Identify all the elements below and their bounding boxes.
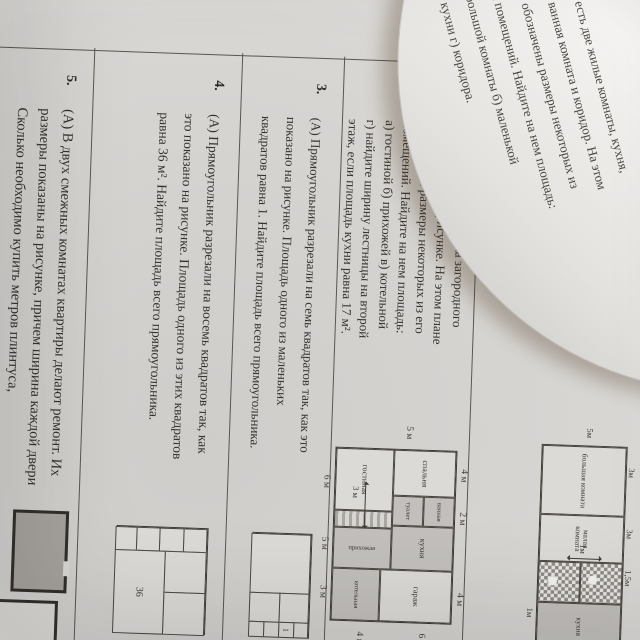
problem-3-number: 3. bbox=[312, 84, 328, 95]
dim-label: 5 м bbox=[404, 426, 414, 439]
small-square bbox=[293, 622, 309, 639]
room-garazh: гараж bbox=[379, 570, 453, 624]
room-prihozhaya: прихожая bbox=[332, 527, 391, 570]
room-vannaya: ванная bbox=[423, 497, 455, 527]
room-kuhnya: кухня bbox=[390, 525, 454, 572]
problem-1-floorplan: 3м 3м 1,5м 5м большая комната малая комн… bbox=[535, 444, 628, 640]
medium-square bbox=[163, 551, 206, 594]
problem-4-text: (А) Прямоугольник разрезали на восемь кв… bbox=[136, 112, 227, 569]
room-hatched-b bbox=[537, 561, 580, 603]
dim-label: 1,5м bbox=[623, 570, 634, 586]
door-mark bbox=[588, 575, 597, 584]
dim-label: 6 м bbox=[321, 475, 331, 488]
room-tualet: туалет bbox=[392, 496, 424, 526]
problem-4-squares-figure: 36 bbox=[113, 525, 209, 635]
dim-label: 5 м bbox=[319, 537, 329, 550]
small-square bbox=[183, 528, 208, 553]
problem-5-rooms-figure bbox=[0, 508, 73, 640]
room-hatched-a bbox=[579, 563, 622, 605]
room-kotelnaya: котельная bbox=[331, 568, 381, 621]
problem-3-squares-figure: 1 bbox=[249, 532, 313, 639]
room-bolshaya-komnata: большая комната bbox=[540, 445, 626, 517]
problem-4-number: 4. bbox=[210, 80, 226, 91]
dim-label: 4 м bbox=[458, 469, 468, 482]
small-square-labeled: 1 bbox=[278, 622, 295, 639]
dim-label: 3 м bbox=[317, 585, 327, 598]
dim-label: 3 м bbox=[351, 486, 361, 498]
problem-2-floorplan: 4 м 2 м 4 м 5 м 6 м 4 м 6 м 5 м 3 м спал… bbox=[330, 447, 458, 625]
medium-square bbox=[248, 592, 280, 623]
room-second bbox=[0, 599, 58, 640]
medium-square bbox=[162, 592, 205, 636]
medium-square bbox=[278, 593, 309, 624]
small-square bbox=[263, 621, 280, 638]
dim-label: 4 м bbox=[353, 631, 363, 640]
dim-label: 3м bbox=[627, 468, 637, 478]
dim-label: 3м bbox=[625, 529, 635, 539]
small-square bbox=[115, 526, 138, 551]
dim-label: 4 м bbox=[454, 593, 464, 606]
problem-5-number: 5. bbox=[62, 75, 78, 86]
dim-label: 1м bbox=[525, 608, 535, 618]
dim-label: 1м bbox=[578, 544, 588, 554]
small-square bbox=[248, 621, 265, 638]
big-square-labeled: 36 bbox=[112, 549, 166, 635]
door-mark bbox=[548, 576, 557, 585]
door-gap bbox=[63, 561, 70, 576]
room-spalnya: спальня bbox=[393, 450, 457, 499]
dim-label: 2 м bbox=[457, 512, 467, 525]
photo-of-worksheet: 3м 3м 1,5м 5м большая комната малая комн… bbox=[0, 0, 640, 640]
dim-label: 5м bbox=[585, 428, 595, 438]
small-square bbox=[159, 528, 185, 553]
room-shaded bbox=[10, 509, 69, 593]
small-square bbox=[136, 527, 161, 552]
big-square bbox=[249, 533, 311, 595]
room-kuhnya: кухня bbox=[536, 602, 622, 640]
room-label: прихожая bbox=[348, 544, 375, 553]
dim-label: 6 м bbox=[416, 633, 426, 640]
room-malaya-komnata: малая комната bbox=[539, 514, 625, 564]
problem-3-text: (А) Прямоугольник разрезали на семь квад… bbox=[238, 116, 329, 565]
